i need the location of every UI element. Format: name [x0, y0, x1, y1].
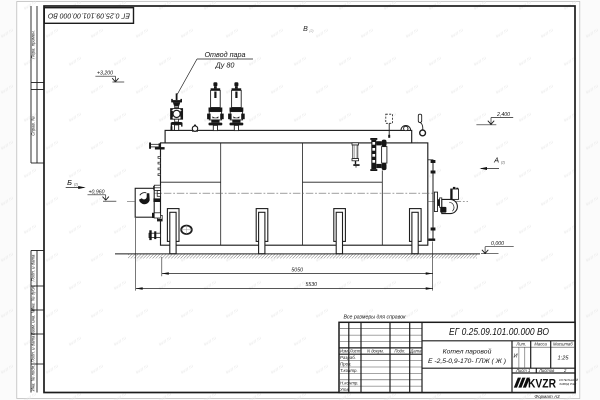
- svg-text:Изм: Изм: [340, 349, 348, 354]
- svg-text:Подп. и дата: Подп. и дата: [31, 335, 36, 363]
- svg-text:А: А: [493, 156, 499, 165]
- svg-text:5050: 5050: [291, 268, 303, 274]
- svg-text:Лист 1: Лист 1: [515, 368, 530, 373]
- svg-text:Е -2,5-0,9-170- ГЛЖ ( Ж ): Е -2,5-0,9-170- ГЛЖ ( Ж ): [428, 358, 506, 365]
- svg-text:Лист: Лист: [349, 349, 361, 354]
- svg-text:Разраб.: Разраб.: [340, 355, 356, 360]
- svg-text:Подп. и дата: Подп. и дата: [31, 254, 36, 282]
- svg-text:Инв. № подл.: Инв. № подл.: [31, 365, 36, 392]
- svg-text:(2): (2): [74, 182, 78, 186]
- svg-text:Ду 80: Ду 80: [215, 60, 235, 69]
- svg-text:Отвод пара: Отвод пара: [204, 50, 245, 59]
- svg-text:5530: 5530: [306, 282, 318, 288]
- svg-text:Дата: Дата: [409, 349, 422, 354]
- svg-text:Котел паровой: Котел паровой: [443, 348, 492, 356]
- svg-text:Масса: Масса: [534, 342, 547, 347]
- svg-text:Листов: Листов: [538, 368, 555, 373]
- svg-text:Подп.: Подп.: [394, 349, 405, 354]
- svg-text:В: В: [303, 26, 308, 33]
- svg-text:(2): (2): [309, 29, 313, 33]
- svg-text:Н.контр.: Н.контр.: [340, 381, 359, 386]
- svg-text:Формат А3: Формат А3: [534, 394, 560, 399]
- svg-text:Т.контр.: Т.контр.: [340, 368, 358, 373]
- svg-text:+0,960: +0,960: [88, 189, 104, 195]
- svg-text:KVZR: KVZR: [528, 376, 556, 390]
- svg-text:Пров.: Пров.: [340, 362, 352, 367]
- svg-text:ЕГ 0.25.09.101.00.000 ВО: ЕГ 0.25.09.101.00.000 ВО: [449, 327, 549, 338]
- svg-text:И: И: [513, 354, 517, 360]
- svg-text:Взам. инв. №: Взам. инв. №: [31, 308, 36, 335]
- svg-text:2,400: 2,400: [496, 112, 510, 118]
- svg-text:1:25: 1:25: [558, 356, 570, 362]
- svg-text:ЕГ 0.25.09.101.00.000 ВО: ЕГ 0.25.09.101.00.000 ВО: [48, 12, 130, 21]
- svg-text:Все размеры для справок: Все размеры для справок: [344, 315, 407, 321]
- svg-text:Перв. примен.: Перв. примен.: [31, 30, 36, 59]
- svg-text:Масштаб: Масштаб: [553, 342, 573, 347]
- svg-text:0,000: 0,000: [491, 241, 504, 247]
- svg-text:Б: Б: [67, 178, 72, 187]
- svg-text:+3,200: +3,200: [97, 70, 113, 76]
- svg-text:Инв. № дубл.: Инв. № дубл.: [31, 285, 36, 311]
- svg-text:ЗАВОД РЭП: ЗАВОД РЭП: [559, 382, 577, 386]
- svg-text:Лит.: Лит.: [515, 342, 526, 347]
- svg-text:Справ. №: Справ. №: [31, 116, 36, 136]
- svg-text:Утв.: Утв.: [340, 387, 350, 392]
- svg-text:N докум.: N докум.: [367, 349, 384, 354]
- svg-text:(2): (2): [501, 161, 505, 165]
